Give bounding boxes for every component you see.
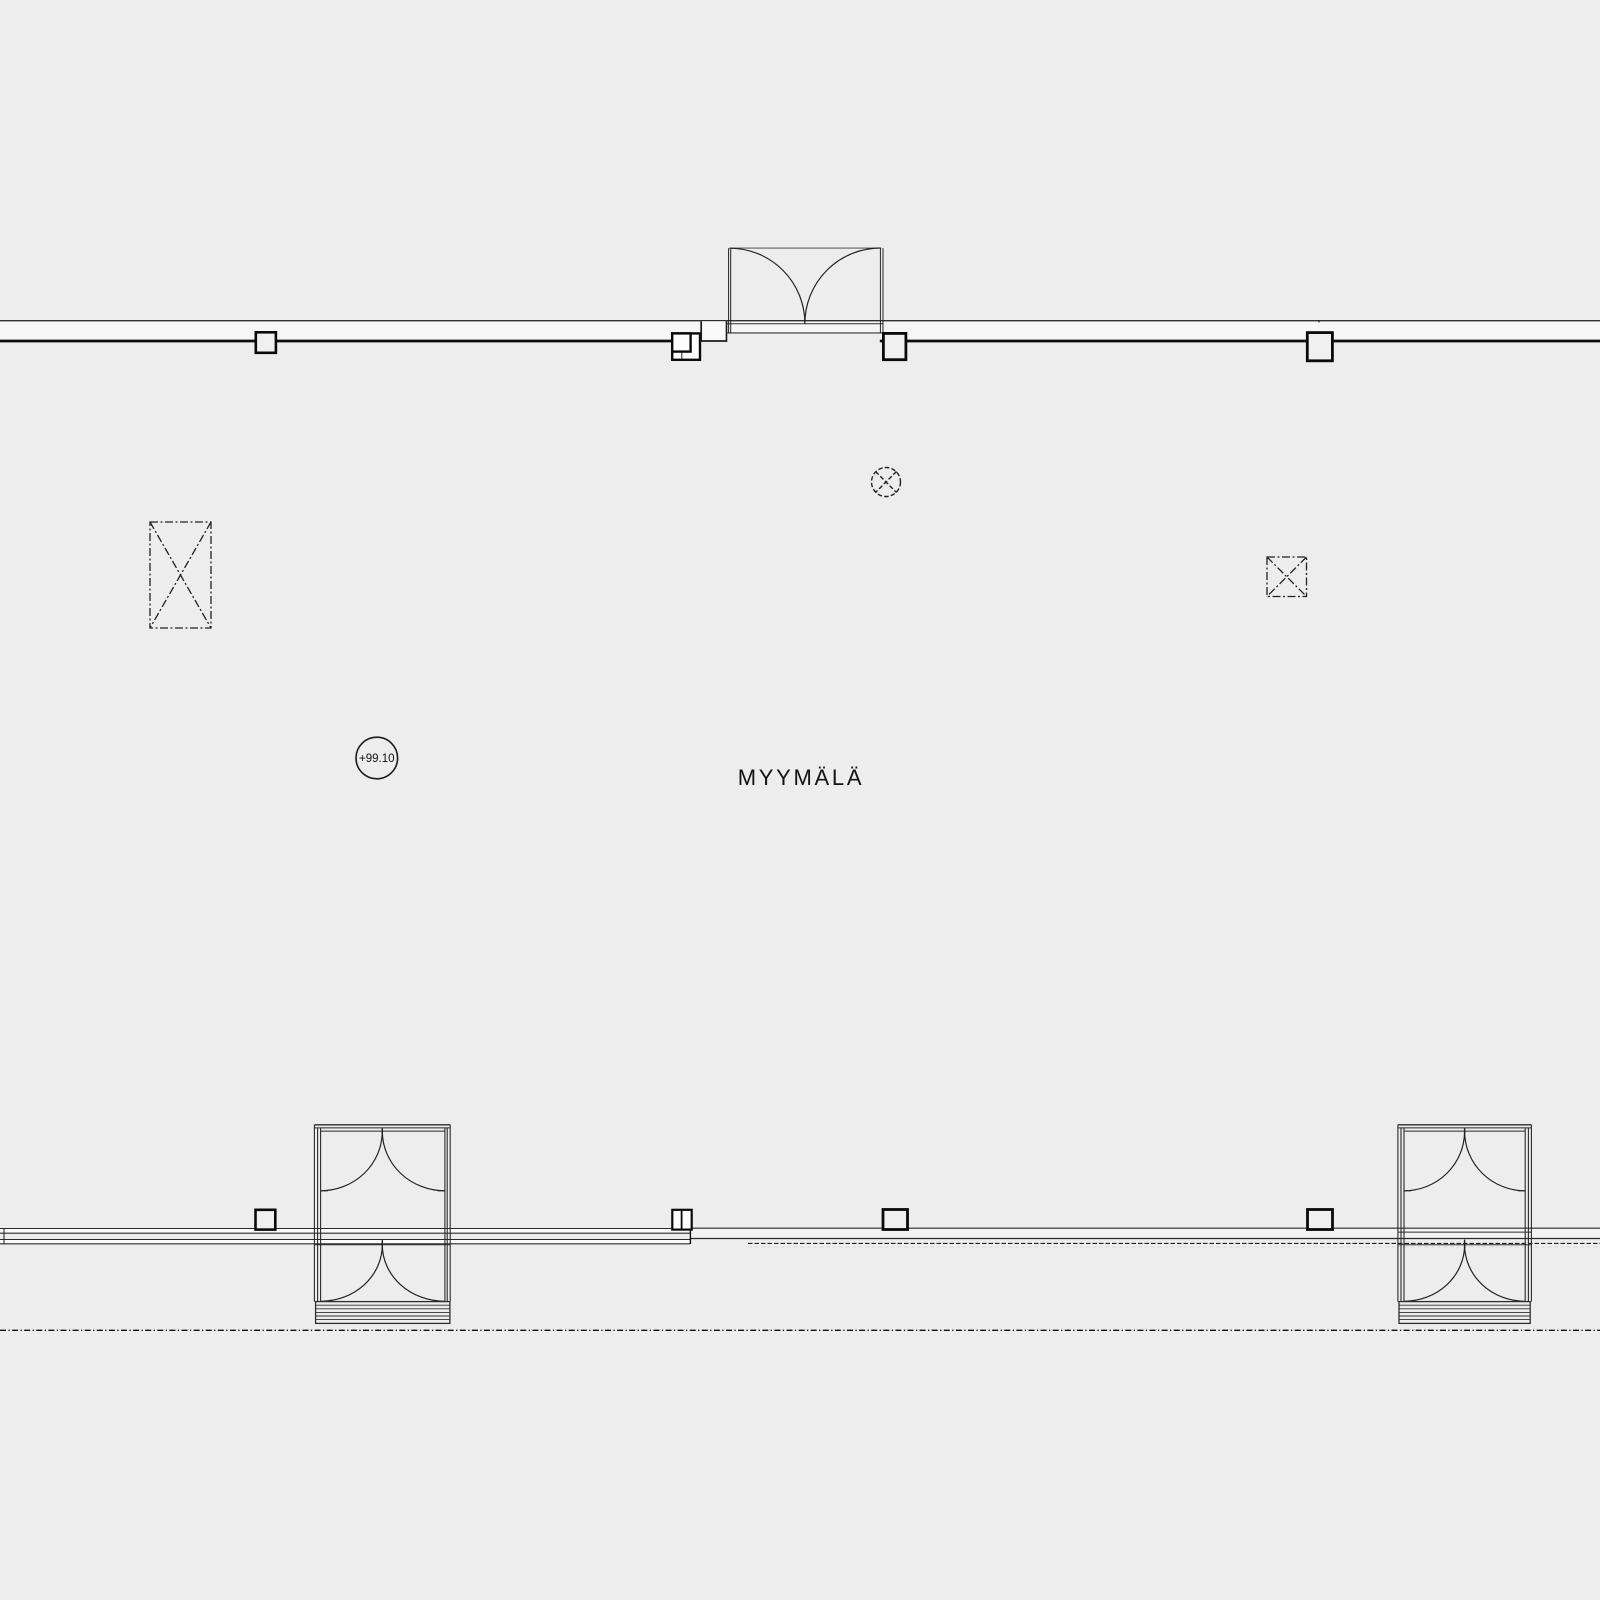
svg-text:MYYMÄLÄ: MYYMÄLÄ [738, 765, 864, 790]
svg-text:+99.10: +99.10 [359, 753, 395, 765]
